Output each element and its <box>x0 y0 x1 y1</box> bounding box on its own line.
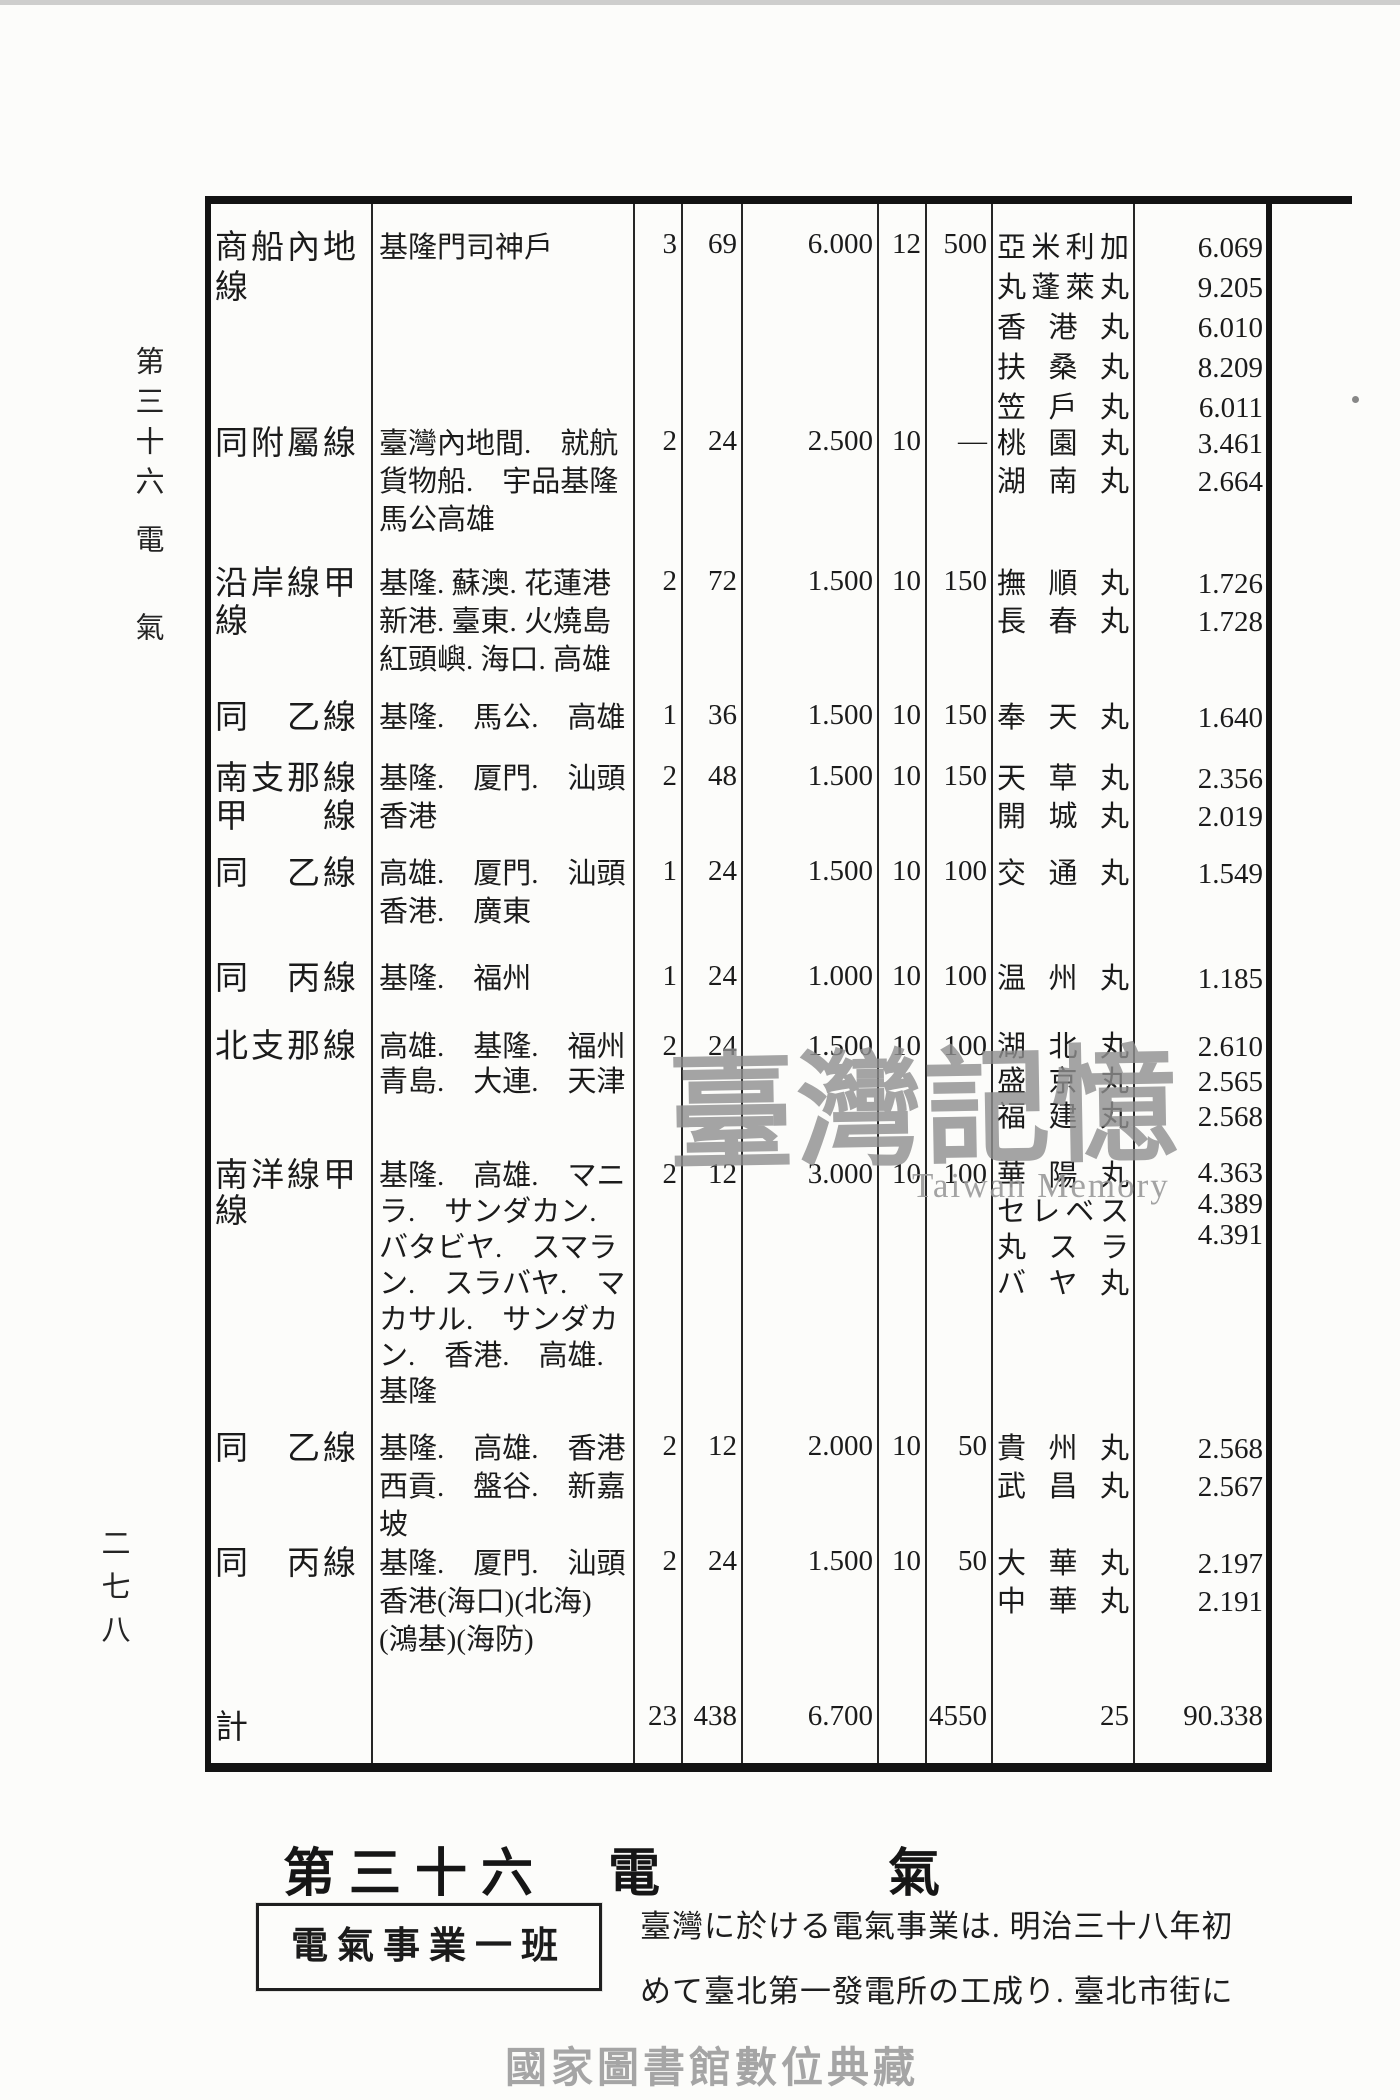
ship-count: 2 <box>635 1430 677 1463</box>
text-line: 同 乙線 <box>215 855 371 893</box>
amount: 1.500 <box>743 1545 873 1578</box>
ship-names: 天草丸開城丸 <box>997 760 1129 836</box>
text-line: 交通丸 <box>997 855 1129 893</box>
text-line: (鴻基)(海防) <box>379 1621 633 1659</box>
ship-tonnage: 2.1972.191 <box>1137 1545 1263 1621</box>
total-ships: 25 <box>997 1700 1129 1733</box>
text-line: 2.568 <box>1137 1430 1263 1468</box>
line-route: 基隆. 厦門. 汕頭香港 <box>379 760 633 836</box>
subsidy: 50 <box>927 1430 987 1463</box>
ship-names: 桃園丸湖南丸 <box>997 425 1129 501</box>
ship-names: 撫順丸長春丸 <box>997 565 1129 641</box>
amount: 1.500 <box>743 760 873 793</box>
text-line: 6.011 <box>1137 388 1263 428</box>
text-line: 6.010 <box>1137 308 1263 348</box>
line-name: 沿岸線甲線 <box>215 565 371 641</box>
text-line: 2.019 <box>1137 798 1263 836</box>
amount: 2.500 <box>743 425 873 458</box>
ship-tonnage: 1.549 <box>1137 855 1263 893</box>
text-line: 基隆. 高雄. マニ <box>379 1158 633 1194</box>
voyages: 48 <box>683 760 737 793</box>
line-name: 同 乙線 <box>215 855 371 893</box>
scan-top-edge <box>0 0 1400 5</box>
text-line: 笠戶丸 <box>997 388 1129 428</box>
text-line: 天草丸 <box>997 760 1129 798</box>
amount: 2.000 <box>743 1430 873 1463</box>
text-line: 臺灣內地間. 就航 <box>379 425 633 463</box>
rate: 10 <box>879 855 921 888</box>
text-line: 同 乙線 <box>215 1430 371 1468</box>
section-label-box: 電氣事業一班 <box>256 1903 602 1991</box>
text-line: 桃園丸 <box>997 425 1129 463</box>
ship-tonnage: 1.640 <box>1137 699 1263 737</box>
text-line: 丸スラ <box>997 1230 1129 1266</box>
text-line: 1.726 <box>1137 565 1263 603</box>
amount: 1.500 <box>743 855 873 888</box>
text-line: ラ. サンダカン. <box>379 1194 633 1230</box>
ship-names: 貴州丸武昌丸 <box>997 1430 1129 1506</box>
text-line: 1.549 <box>1137 855 1263 893</box>
text-line: 8.209 <box>1137 348 1263 388</box>
subsidy: 150 <box>927 565 987 598</box>
ship-tonnage: 6.0699.2056.0108.2096.011 <box>1137 228 1263 428</box>
text-line: 扶桑丸 <box>997 348 1129 388</box>
line-name: 同 丙線 <box>215 1545 371 1583</box>
line-route: 高雄. 厦門. 汕頭香港. 廣東 <box>379 855 633 931</box>
text-line: カサル. サンダカ <box>379 1302 633 1338</box>
subsidy: 150 <box>927 760 987 793</box>
text-line: 基隆. 福州 <box>379 960 633 998</box>
text-line: 同 丙線 <box>215 960 371 998</box>
ship-tonnage: 1.7261.728 <box>1137 565 1263 641</box>
text-line: 武昌丸 <box>997 1468 1129 1506</box>
text-line: 温州丸 <box>997 960 1129 998</box>
text-line: 新港. 臺東. 火燒島 <box>379 603 633 641</box>
voyages: 12 <box>683 1430 737 1463</box>
ship-tonnage: 1.185 <box>1137 960 1263 998</box>
rate: 10 <box>879 960 921 993</box>
text-line: ン. 香港. 高雄. <box>379 1338 633 1374</box>
text-line: 貨物船. 宇品基隆 <box>379 463 633 501</box>
subsidy: — <box>927 425 987 458</box>
ship-names: 温州丸 <box>997 960 1129 998</box>
section-heading-number: 第三十六 <box>283 1831 547 1906</box>
text-line: 商船內地 <box>215 228 371 268</box>
margin-page-number: 二七八 <box>92 1528 134 1657</box>
ship-count: 3 <box>635 228 677 261</box>
line-route: 基隆. 馬公. 高雄 <box>379 699 633 737</box>
subsidy: 50 <box>927 1545 987 1578</box>
line-route: 高雄. 基隆. 福州青島. 大連. 天津 <box>379 1030 633 1100</box>
text-line: 2.567 <box>1137 1468 1263 1506</box>
line-name: 同 丙線 <box>215 960 371 998</box>
ship-count: 2 <box>635 425 677 458</box>
text-line: 奉天丸 <box>997 699 1129 737</box>
text-line: 基隆. 厦門. 汕頭 <box>379 760 633 798</box>
voyages: 24 <box>683 425 737 458</box>
line-name: 南洋線甲線 <box>215 1158 371 1230</box>
voyages: 36 <box>683 699 737 732</box>
text-line: 丸蓬萊丸 <box>997 268 1129 308</box>
total-label: 計 <box>215 1700 371 1748</box>
ship-names: 大華丸中華丸 <box>997 1545 1129 1621</box>
text-line: 2.356 <box>1137 760 1263 798</box>
text-line: 馬公高雄 <box>379 501 633 539</box>
text-line: 同附屬線 <box>215 425 371 463</box>
total-subsidy: 4550 <box>927 1700 987 1733</box>
ship-tonnage: 3.4612.664 <box>1137 425 1263 501</box>
rate: 10 <box>879 1545 921 1578</box>
text-line: 線 <box>215 268 371 308</box>
text-line: 南洋線甲 <box>215 1158 371 1194</box>
rate: 12 <box>879 228 921 261</box>
ship-count: 1 <box>635 960 677 993</box>
column-rule <box>991 204 993 1763</box>
total-voyages: 438 <box>683 1700 737 1733</box>
voyages: 24 <box>683 960 737 993</box>
ship-count: 1 <box>635 855 677 888</box>
line-route: 基隆. 福州 <box>379 960 633 998</box>
text-line: バタビヤ. スマラ <box>379 1230 633 1266</box>
text-line: 同 乙線 <box>215 699 371 737</box>
text-line: 基隆 <box>379 1374 633 1410</box>
text-line: 高雄. 厦門. 汕頭 <box>379 855 633 893</box>
text-line: 甲 線 <box>215 798 371 836</box>
voyages: 24 <box>683 1545 737 1578</box>
amount: 1.000 <box>743 960 873 993</box>
voyages: 69 <box>683 228 737 261</box>
text-line: 紅頭嶼. 海口. 高雄 <box>379 641 633 679</box>
text-line: 6.069 <box>1137 228 1263 268</box>
text-line: 基隆. 馬公. 高雄 <box>379 699 633 737</box>
ship-names: 奉天丸 <box>997 699 1129 737</box>
text-line: 4.391 <box>1137 1220 1263 1251</box>
text-line: 沿岸線甲 <box>215 565 371 603</box>
line-name: 同附屬線 <box>215 425 371 463</box>
line-name: 南支那線甲 線 <box>215 760 371 836</box>
ship-names: 交通丸 <box>997 855 1129 893</box>
text-line: 香港. 廣東 <box>379 893 633 931</box>
subsidy: 500 <box>927 228 987 261</box>
ship-count: 1 <box>635 699 677 732</box>
text-line: 1.640 <box>1137 699 1263 737</box>
text-line: 香港 <box>379 798 633 836</box>
text-line: バヤ丸 <box>997 1266 1129 1302</box>
text-line: 開城丸 <box>997 798 1129 836</box>
text-line: 長春丸 <box>997 603 1129 641</box>
margin-chapter-label: 第三十六 <box>126 346 168 506</box>
subsidy: 100 <box>927 855 987 888</box>
text-line: 同 丙線 <box>215 1545 371 1583</box>
ship-count: 2 <box>635 760 677 793</box>
text-line: 基隆門司神戶 <box>379 228 633 268</box>
total-tonnage: 90.338 <box>1137 1700 1263 1733</box>
text-line: 大華丸 <box>997 1545 1129 1583</box>
text-line: 3.461 <box>1137 425 1263 463</box>
line-name: 同 乙線 <box>215 1430 371 1468</box>
line-route: 基隆. 高雄. 香港西貢. 盤谷. 新嘉坡 <box>379 1430 633 1544</box>
text-line: 9.205 <box>1137 268 1263 308</box>
text-line: 2.664 <box>1137 463 1263 501</box>
line-name: 商船內地線 <box>215 228 371 308</box>
library-footer-watermark: 國家圖書館數位典藏 <box>505 2034 919 2095</box>
text-line: 1.185 <box>1137 960 1263 998</box>
section-heading-qi: 氣 <box>888 1831 954 1906</box>
text-line: ン. スラバヤ. マ <box>379 1266 633 1302</box>
margin-chapter-label-electric: 電 <box>126 524 168 564</box>
rate: 10 <box>879 1430 921 1463</box>
text-line: 基隆. 厦門. 汕頭 <box>379 1545 633 1583</box>
text-line: 中華丸 <box>997 1583 1129 1621</box>
total-ship-count: 23 <box>635 1700 677 1733</box>
text-line: 香港(海口)(北海) <box>379 1583 633 1621</box>
text-line: 2.197 <box>1137 1545 1263 1583</box>
text-line: 南支那線 <box>215 760 371 798</box>
rate: 10 <box>879 760 921 793</box>
text-line: 線 <box>215 1194 371 1230</box>
rate: 10 <box>879 565 921 598</box>
text-line: 2.191 <box>1137 1583 1263 1621</box>
text-line: 撫順丸 <box>997 565 1129 603</box>
ship-count: 2 <box>635 1545 677 1578</box>
amount: 6.000 <box>743 228 873 261</box>
text-line: 湖南丸 <box>997 463 1129 501</box>
text-line: 青島. 大連. 天津 <box>379 1065 633 1100</box>
column-rule <box>1133 204 1135 1763</box>
text-line: 線 <box>215 603 371 641</box>
text-line: 基隆. 蘇澳. 花蓮港 <box>379 565 633 603</box>
shipping-lines-table: 商船內地線 基隆門司神戶 3 69 6.000 12 500 亞米利加丸蓬萊丸香… <box>205 196 1272 1772</box>
rate: 10 <box>879 699 921 732</box>
line-route: 基隆. 厦門. 汕頭香港(海口)(北海)(鴻基)(海防) <box>379 1545 633 1659</box>
text-line: 香港丸 <box>997 308 1129 348</box>
line-route: 基隆. 蘇澳. 花蓮港新港. 臺東. 火燒島紅頭嶼. 海口. 高雄 <box>379 565 633 679</box>
text-line: 高雄. 基隆. 福州 <box>379 1030 633 1065</box>
margin-chapter-label-气: 氣 <box>126 612 168 652</box>
column-rule <box>371 204 373 1763</box>
text-line: 西貢. 盤谷. 新嘉 <box>379 1468 633 1506</box>
amount: 1.500 <box>743 565 873 598</box>
text-line: 坡 <box>379 1506 633 1544</box>
line-name: 北支那線 <box>215 1030 371 1065</box>
text-line: 基隆. 高雄. 香港 <box>379 1430 633 1468</box>
ship-names: 亞米利加丸蓬萊丸香港丸扶桑丸笠戶丸 <box>997 228 1129 428</box>
total-amount: 6.700 <box>743 1700 873 1733</box>
amount: 1.500 <box>743 699 873 732</box>
section-heading-electric: 電 <box>608 1831 674 1906</box>
ship-count: 2 <box>635 565 677 598</box>
text-line: 北支那線 <box>215 1030 371 1065</box>
rate: 10 <box>879 425 921 458</box>
subsidy: 100 <box>927 960 987 993</box>
scan-dot-artifact <box>1352 396 1359 403</box>
paragraph-line: めて臺北第一發電所の工成り. 臺北市街に <box>640 1966 1234 2011</box>
line-route: 基隆門司神戶 <box>379 228 633 268</box>
voyages: 72 <box>683 565 737 598</box>
text-line: 貴州丸 <box>997 1430 1129 1468</box>
voyages: 24 <box>683 855 737 888</box>
line-route: 基隆. 高雄. マニラ. サンダカン.バタビヤ. スマラン. スラバヤ. マカサ… <box>379 1158 633 1410</box>
subsidy: 150 <box>927 699 987 732</box>
text-line: 亞米利加 <box>997 228 1129 268</box>
taiwan-memory-latin-watermark: Taiwan Memory <box>912 1166 1170 1206</box>
line-route: 臺灣內地間. 就航貨物船. 宇品基隆馬公高雄 <box>379 425 633 539</box>
text-line: 1.728 <box>1137 603 1263 641</box>
ship-tonnage: 2.5682.567 <box>1137 1430 1263 1506</box>
line-name: 同 乙線 <box>215 699 371 737</box>
paragraph-line: 臺灣に於ける電氣事業は. 明治三十八年初 <box>640 1901 1234 1946</box>
ship-tonnage: 2.3562.019 <box>1137 760 1263 836</box>
table-border-stub <box>1266 196 1352 204</box>
